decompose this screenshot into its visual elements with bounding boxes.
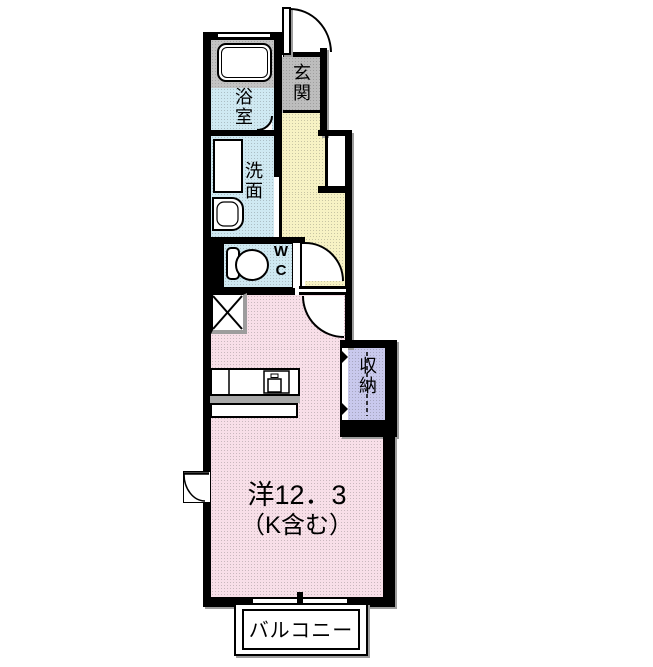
water-heater-box	[211, 293, 247, 334]
bath-window	[218, 34, 270, 37]
washroom-label: 洗面	[244, 161, 262, 201]
entrance-door-arc	[290, 9, 331, 52]
wc-pipe-block	[203, 237, 223, 295]
hallway-floor-2	[282, 131, 325, 193]
wall-entrance-right	[320, 48, 327, 136]
bathtub	[217, 43, 272, 82]
hallway-floor-3	[282, 193, 345, 238]
side-door-box	[183, 471, 211, 503]
storage-label: 収納	[358, 356, 376, 396]
balcony-label: バルコニー	[242, 614, 360, 643]
hallway-floor-4	[305, 238, 345, 287]
wall-right-upper-outer	[345, 131, 352, 348]
wall-right-lower-outer	[383, 437, 395, 607]
wc-label: W C	[269, 242, 293, 280]
entrance-label: 玄関	[292, 63, 310, 103]
kitchen-counter-front	[210, 403, 298, 418]
wc-label-c: C	[269, 261, 293, 280]
kitchen-counter	[210, 368, 300, 396]
wall-left-outer	[203, 32, 211, 607]
storage-wall-bottom	[340, 420, 397, 437]
washer-space	[213, 139, 243, 193]
wash-basin	[212, 197, 244, 231]
room-door-line-1	[299, 286, 346, 289]
bathtub-inner-line	[221, 47, 268, 78]
entrance-door-leaf	[282, 7, 291, 55]
wc-door-leaf	[293, 243, 302, 288]
hallway-floor-1	[282, 113, 320, 131]
washroom-sliding-door	[279, 177, 282, 238]
meter-box-niche	[328, 136, 345, 186]
niche-wall-left	[325, 136, 328, 187]
storage-door-strip	[340, 348, 348, 420]
wall-bath-washroom-divider	[203, 130, 276, 136]
wc-label-w: W	[269, 242, 293, 261]
bath-label: 浴室	[234, 87, 252, 127]
floorplan: 浴室 洗面 W C 玄関 収納 洋12．3 （K含む） バルコニー	[0, 0, 653, 667]
kitchen-counter-edge	[210, 396, 300, 403]
room-door-line-2	[299, 292, 346, 295]
main-room-note-label: （K含む）	[217, 505, 377, 540]
entrance-step-line	[283, 110, 320, 113]
